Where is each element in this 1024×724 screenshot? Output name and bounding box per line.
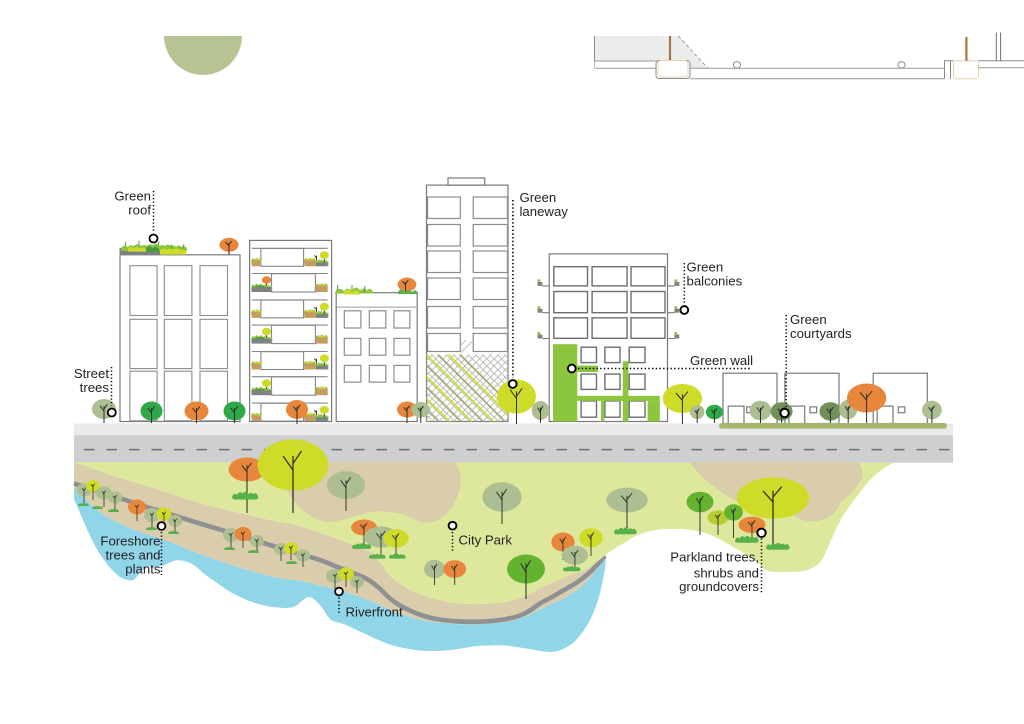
svg-text:Green: Green — [687, 260, 724, 275]
svg-text:balconies: balconies — [687, 274, 743, 289]
svg-text:laneway: laneway — [520, 204, 569, 219]
svg-text:Green wall: Green wall — [690, 353, 753, 368]
svg-text:trees: trees — [80, 380, 110, 395]
svg-text:roof: roof — [128, 203, 151, 218]
svg-text:Green: Green — [114, 189, 151, 204]
svg-text:Parkland trees,: Parkland trees, — [670, 550, 759, 565]
svg-text:courtyards: courtyards — [790, 326, 852, 341]
svg-text:trees and: trees and — [106, 548, 161, 563]
svg-text:plants: plants — [125, 562, 161, 577]
svg-text:Foreshore: Foreshore — [100, 534, 160, 549]
svg-text:Green: Green — [790, 312, 827, 327]
svg-text:City Park: City Park — [459, 533, 513, 548]
svg-text:Street: Street — [74, 366, 110, 381]
svg-text:groundcovers: groundcovers — [679, 579, 759, 594]
svg-text:Green: Green — [520, 190, 557, 205]
svg-text:Riverfront: Riverfront — [346, 605, 403, 620]
